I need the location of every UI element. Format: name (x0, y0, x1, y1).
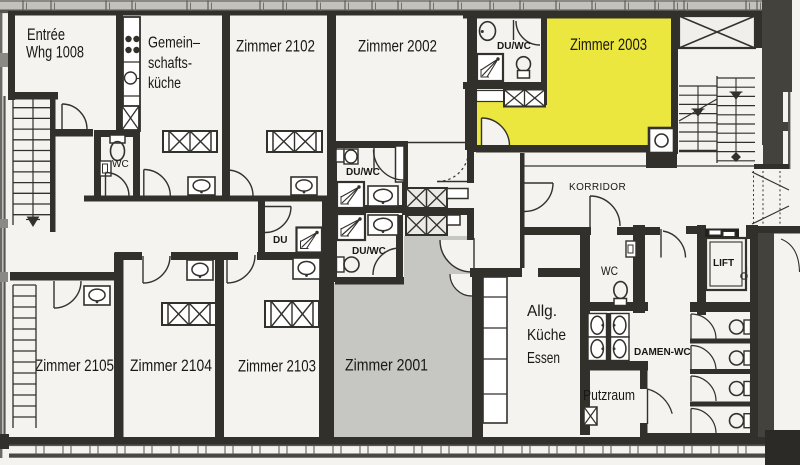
svg-text:küche: küche (148, 75, 181, 92)
svg-text:DU: DU (273, 235, 287, 246)
svg-text:DU/WC: DU/WC (497, 41, 531, 52)
svg-text:Entrée: Entrée (27, 26, 65, 44)
svg-text:Zimmer 2102: Zimmer 2102 (236, 38, 315, 56)
svg-text:Küche: Küche (527, 327, 566, 344)
svg-text:Zimmer 2001: Zimmer 2001 (345, 357, 428, 375)
svg-text:schafts-: schafts- (148, 55, 192, 72)
svg-text:Zimmer 2105: Zimmer 2105 (35, 357, 114, 375)
svg-text:Putzraum: Putzraum (583, 388, 635, 404)
svg-text:WC: WC (112, 159, 129, 170)
svg-text:Whg 1008: Whg 1008 (26, 44, 84, 62)
svg-text:DU/WC: DU/WC (346, 167, 380, 178)
svg-text:KORRIDOR: KORRIDOR (569, 182, 626, 193)
svg-text:Zimmer 2103: Zimmer 2103 (238, 358, 316, 376)
svg-text:DAMEN-WC: DAMEN-WC (634, 347, 691, 358)
svg-text:Essen: Essen (527, 350, 560, 367)
svg-text:Zimmer 2104: Zimmer 2104 (130, 357, 212, 375)
svg-text:Allg.: Allg. (527, 303, 557, 320)
svg-text:WC: WC (601, 264, 618, 278)
svg-text:LIFT: LIFT (713, 258, 734, 269)
svg-text:Gemein–: Gemein– (148, 35, 200, 52)
svg-text:Zimmer 2003: Zimmer 2003 (570, 36, 647, 54)
svg-text:Zimmer 2002: Zimmer 2002 (358, 38, 437, 56)
